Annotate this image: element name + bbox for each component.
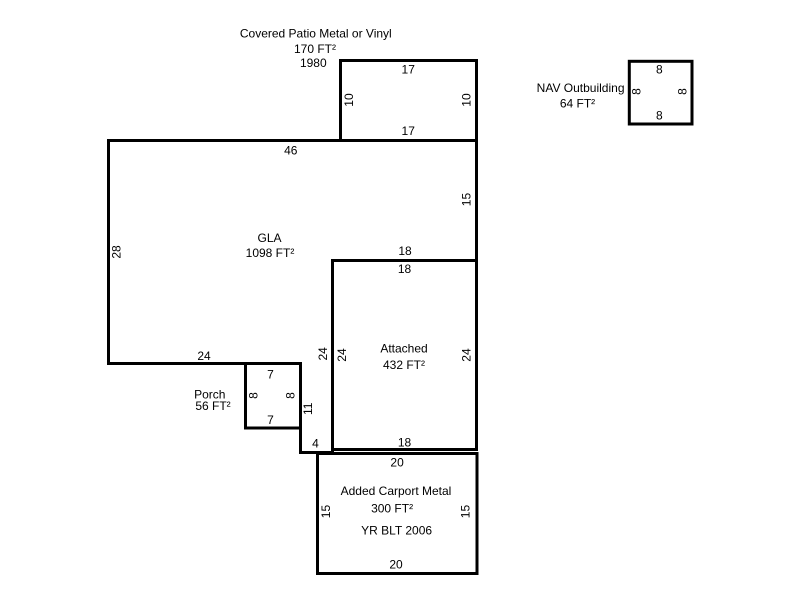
svg-text:1980: 1980 (300, 56, 327, 70)
svg-text:8: 8 (284, 392, 298, 399)
svg-text:64 FT²: 64 FT² (560, 97, 595, 111)
svg-text:56 FT²: 56 FT² (195, 399, 230, 413)
svg-text:18: 18 (398, 262, 412, 276)
svg-text:20: 20 (389, 558, 403, 572)
svg-text:Covered Patio Metal or Vinyl: Covered Patio Metal or Vinyl (240, 27, 392, 41)
svg-text:7: 7 (267, 367, 274, 381)
svg-text:28: 28 (110, 245, 124, 259)
svg-text:Attached: Attached (380, 342, 427, 356)
svg-text:17: 17 (402, 62, 416, 76)
svg-text:1098 FT²: 1098 FT² (246, 246, 295, 260)
svg-text:15: 15 (458, 505, 472, 519)
svg-text:10: 10 (342, 93, 356, 107)
svg-text:NAV Outbuilding: NAV Outbuilding (537, 81, 625, 95)
svg-text:7: 7 (267, 413, 274, 427)
svg-text:15: 15 (460, 193, 474, 207)
svg-text:18: 18 (398, 244, 412, 258)
svg-text:Added Carport Metal: Added Carport Metal (341, 484, 452, 498)
svg-text:170 FT²: 170 FT² (294, 42, 336, 56)
svg-text:18: 18 (398, 435, 412, 449)
svg-text:20: 20 (390, 456, 404, 470)
svg-text:46: 46 (284, 144, 298, 158)
svg-text:8: 8 (656, 63, 663, 77)
svg-text:4: 4 (312, 436, 319, 450)
svg-text:300 FT²: 300 FT² (371, 501, 413, 515)
svg-text:17: 17 (402, 124, 416, 138)
svg-text:24: 24 (316, 347, 330, 361)
svg-text:8: 8 (247, 392, 261, 399)
svg-text:15: 15 (319, 505, 333, 519)
svg-text:GLA: GLA (257, 231, 281, 245)
svg-text:8: 8 (630, 88, 644, 95)
svg-text:11: 11 (301, 402, 315, 415)
svg-text:YR BLT 2006: YR BLT 2006 (361, 524, 432, 538)
svg-text:10: 10 (460, 93, 474, 107)
svg-text:8: 8 (656, 109, 663, 123)
svg-text:24: 24 (197, 349, 211, 363)
svg-text:24: 24 (335, 348, 349, 362)
svg-text:432 FT²: 432 FT² (383, 358, 425, 372)
svg-text:24: 24 (459, 348, 473, 362)
svg-text:8: 8 (676, 88, 690, 95)
